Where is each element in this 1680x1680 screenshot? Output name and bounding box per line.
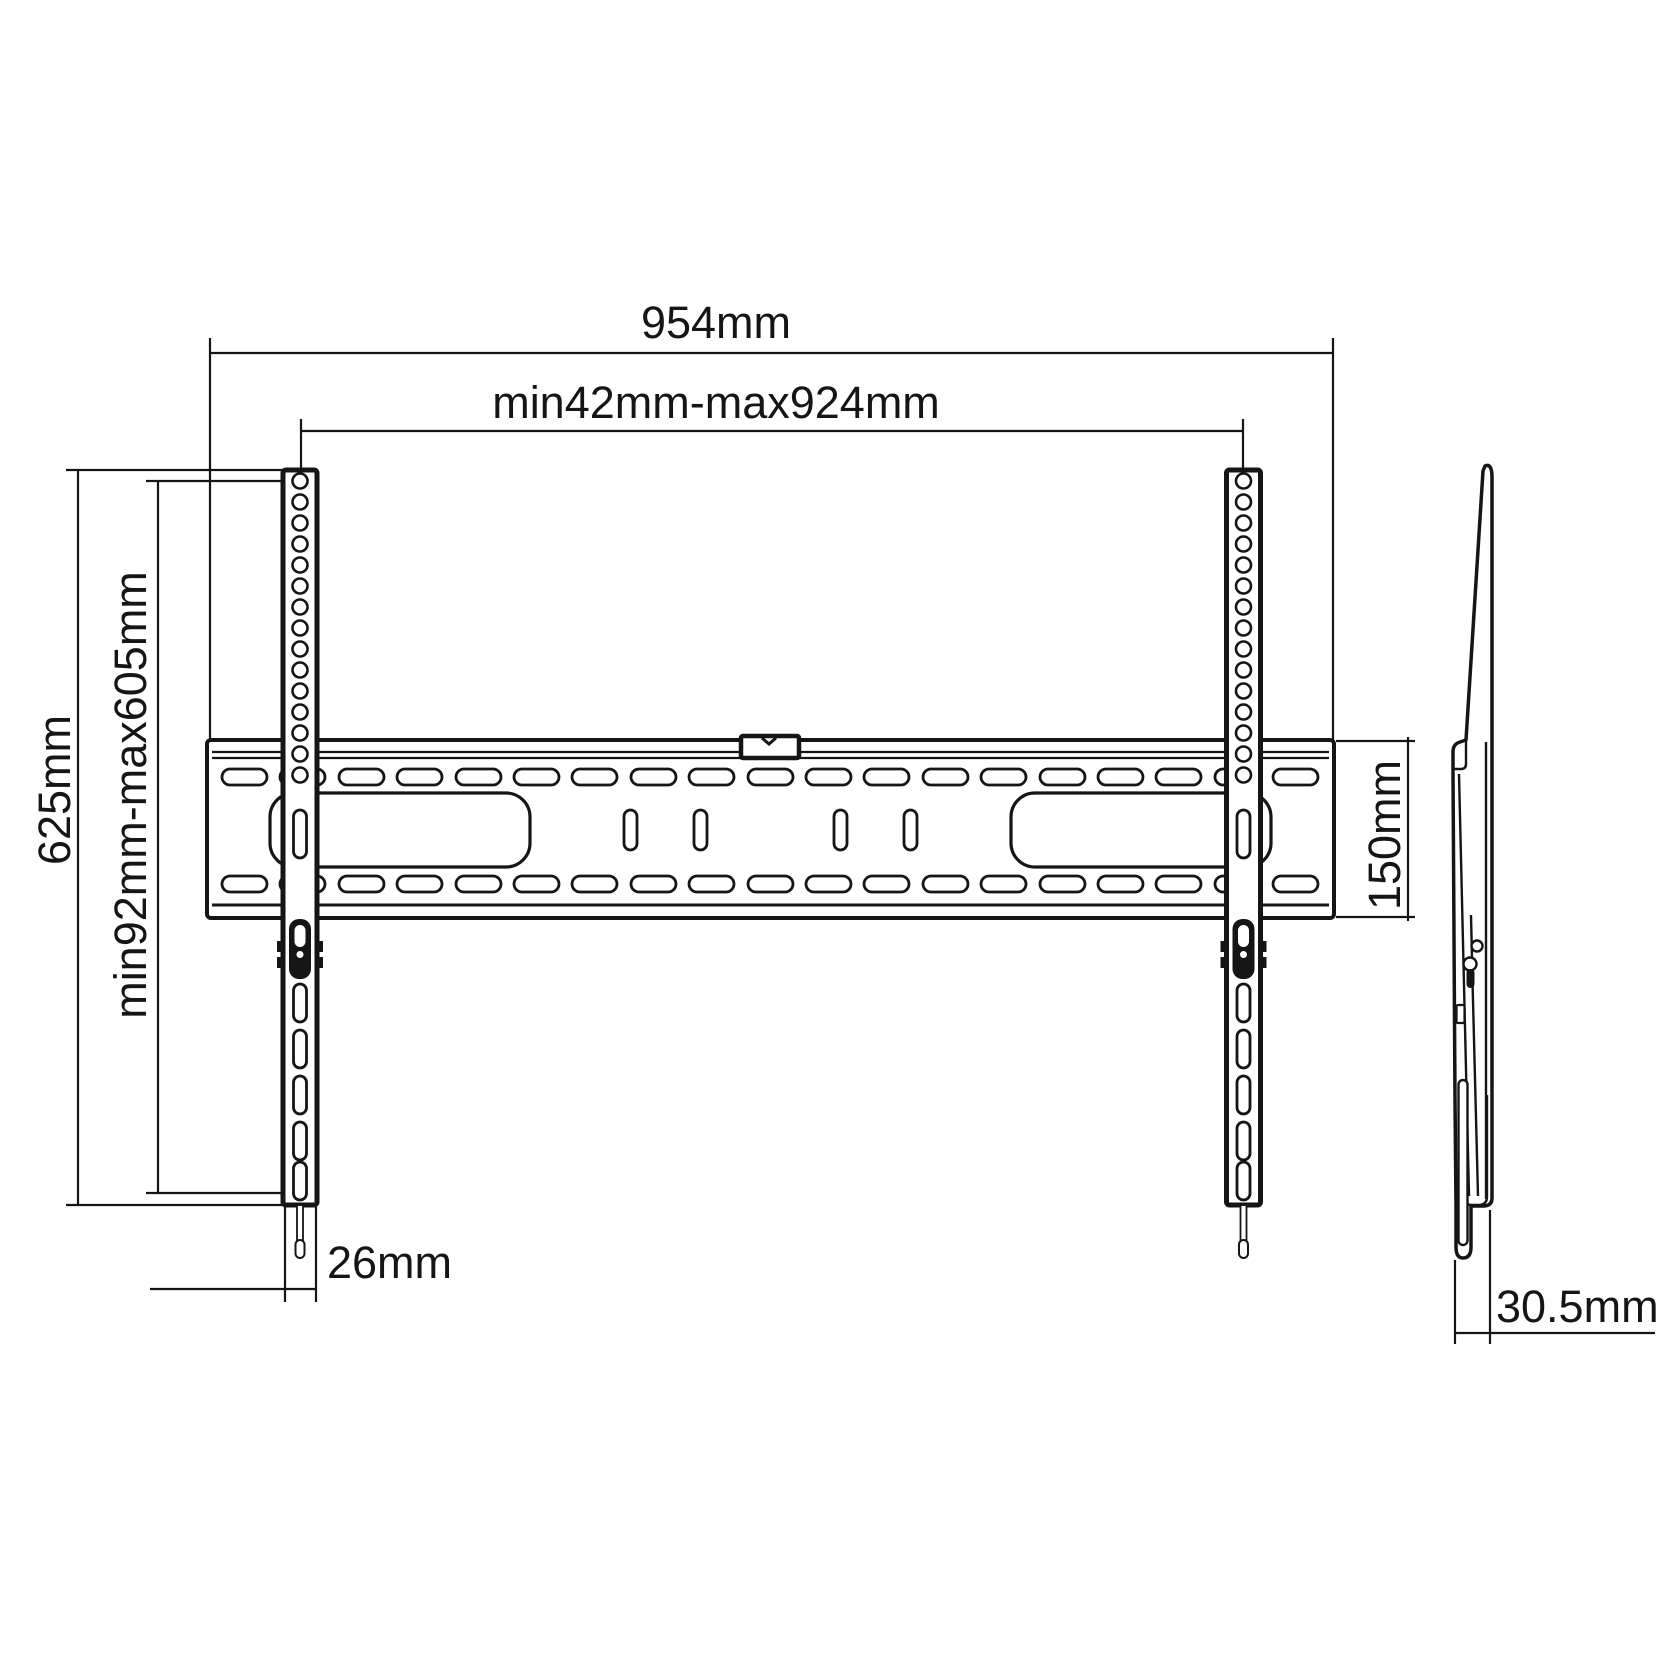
lock-pin-head [1464,958,1477,971]
overall-width-label: 954mm [641,297,791,348]
overall-height-label: 625mm [29,715,80,865]
vertical-range-label: min92mm-max605mm [105,571,156,1019]
level-tab [741,736,799,758]
wall-plate [207,736,1334,918]
strap-buckle [1457,1005,1465,1023]
center-slot [624,810,637,850]
center-slot [694,810,707,850]
horizontal-range-label: min42mm-max924mm [492,377,940,428]
technical-drawing-page: 954mm min42mm-max924mm 625mm min92mm-max… [0,0,1680,1680]
right-vertical-rail [1221,470,1267,1258]
drawing-canvas: 954mm min42mm-max924mm 625mm min92mm-max… [0,0,1680,1680]
lock-pin-body [1467,969,1475,988]
profile-depth-label: 30.5mm [1496,1281,1659,1332]
side-hole [1472,941,1483,952]
level-tab-body [741,736,799,758]
strap-slot [1459,1080,1468,1245]
rail-width-label: 26mm [327,1237,452,1288]
plate-height-label: 150mm [1359,760,1410,910]
center-slot [834,810,847,850]
left-vertical-rail [277,470,323,1258]
center-slot [904,810,917,850]
